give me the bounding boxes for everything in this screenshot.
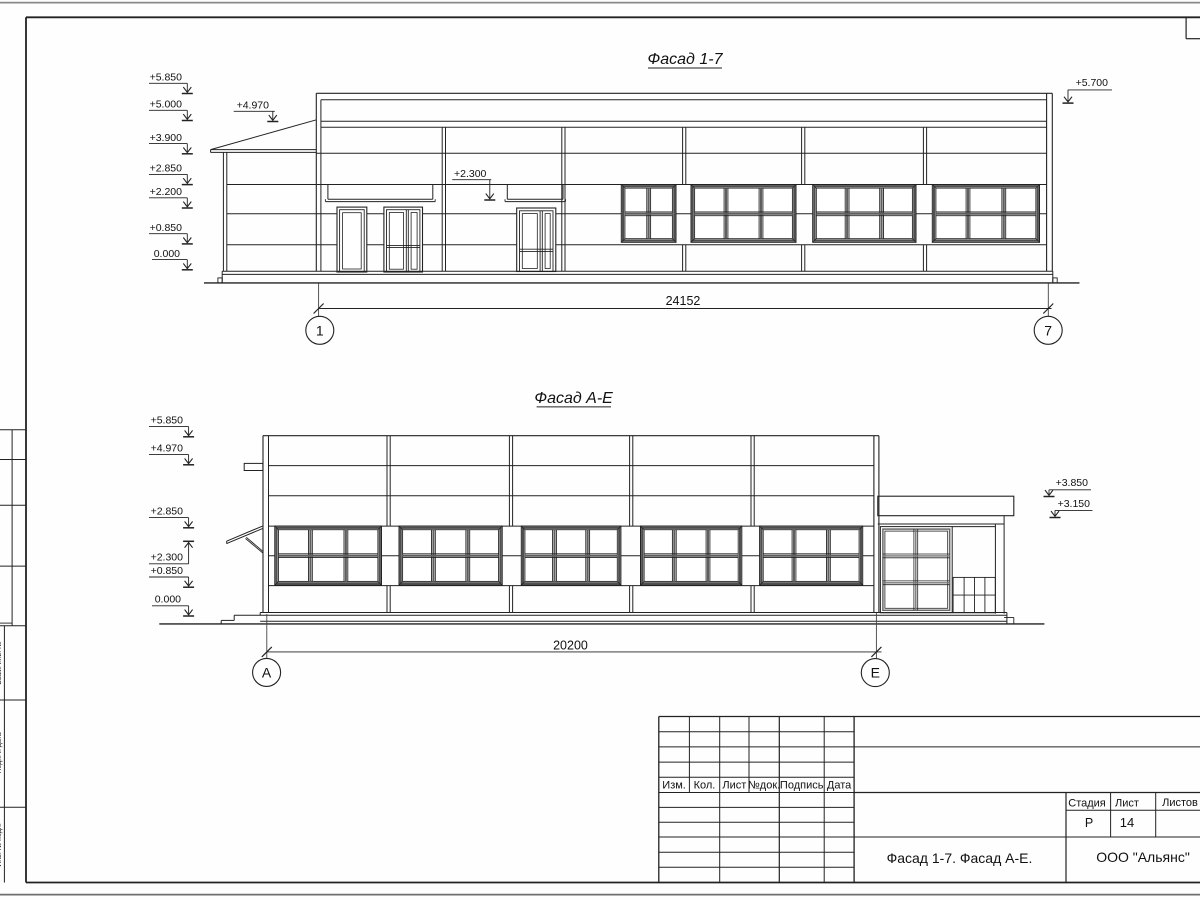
svg-text:Изм.: Изм. — [662, 779, 686, 791]
svg-text:Стадия: Стадия — [1068, 797, 1106, 809]
svg-text:+5.000: +5.000 — [150, 99, 183, 111]
svg-text:+2.200: +2.200 — [150, 186, 183, 198]
svg-text:Инв. № подл.: Инв. № подл. — [0, 823, 3, 867]
svg-text:Подпись: Подпись — [780, 779, 824, 791]
svg-text:+3.150: +3.150 — [1058, 498, 1091, 510]
svg-text:Е: Е — [871, 665, 880, 681]
svg-text:Р: Р — [1085, 816, 1093, 830]
svg-text:А: А — [262, 664, 272, 680]
svg-text:+0.850: +0.850 — [150, 222, 183, 234]
svg-text:+0.850: +0.850 — [151, 565, 184, 577]
svg-text:+2.850: +2.850 — [150, 163, 183, 175]
svg-text:7: 7 — [1044, 322, 1052, 338]
svg-text:0.000: 0.000 — [154, 248, 180, 260]
svg-text:Подп. и дата: Подп. и дата — [0, 732, 3, 773]
svg-text:+2.300: +2.300 — [151, 552, 184, 564]
svg-text:+5.850: +5.850 — [150, 72, 183, 84]
svg-text:+2.850: +2.850 — [151, 506, 184, 518]
svg-text:ООО "Альянс": ООО "Альянс" — [1096, 849, 1190, 865]
svg-text:+5.700: +5.700 — [1076, 77, 1109, 89]
svg-text:Взам. инв. №: Взам. инв. № — [0, 641, 3, 684]
svg-text:+4.970: +4.970 — [151, 443, 184, 455]
svg-text:24152: 24152 — [666, 294, 701, 308]
svg-text:0.000: 0.000 — [155, 594, 181, 606]
svg-text:Дата: Дата — [827, 779, 852, 791]
svg-text:+3.850: +3.850 — [1056, 477, 1089, 489]
svg-text:+2.300: +2.300 — [454, 168, 487, 180]
svg-text:+3.900: +3.900 — [150, 132, 183, 144]
svg-text:Лист: Лист — [1115, 797, 1139, 809]
svg-text:Кол.: Кол. — [694, 779, 716, 791]
svg-text:1: 1 — [316, 322, 324, 338]
svg-text:№док.: №док. — [748, 779, 780, 791]
svg-text:Листов: Листов — [1162, 797, 1198, 809]
svg-text:Лист: Лист — [722, 779, 746, 791]
svg-text:Фасад А-Е: Фасад А-Е — [534, 390, 613, 407]
svg-text:+5.850: +5.850 — [151, 415, 184, 427]
svg-text:Фасад 1-7: Фасад 1-7 — [648, 51, 724, 68]
svg-text:Фасад 1-7. Фасад А-Е.: Фасад 1-7. Фасад А-Е. — [887, 850, 1033, 866]
svg-text:20200: 20200 — [553, 639, 588, 653]
svg-text:+4.970: +4.970 — [237, 99, 270, 111]
svg-text:14: 14 — [1120, 815, 1134, 830]
